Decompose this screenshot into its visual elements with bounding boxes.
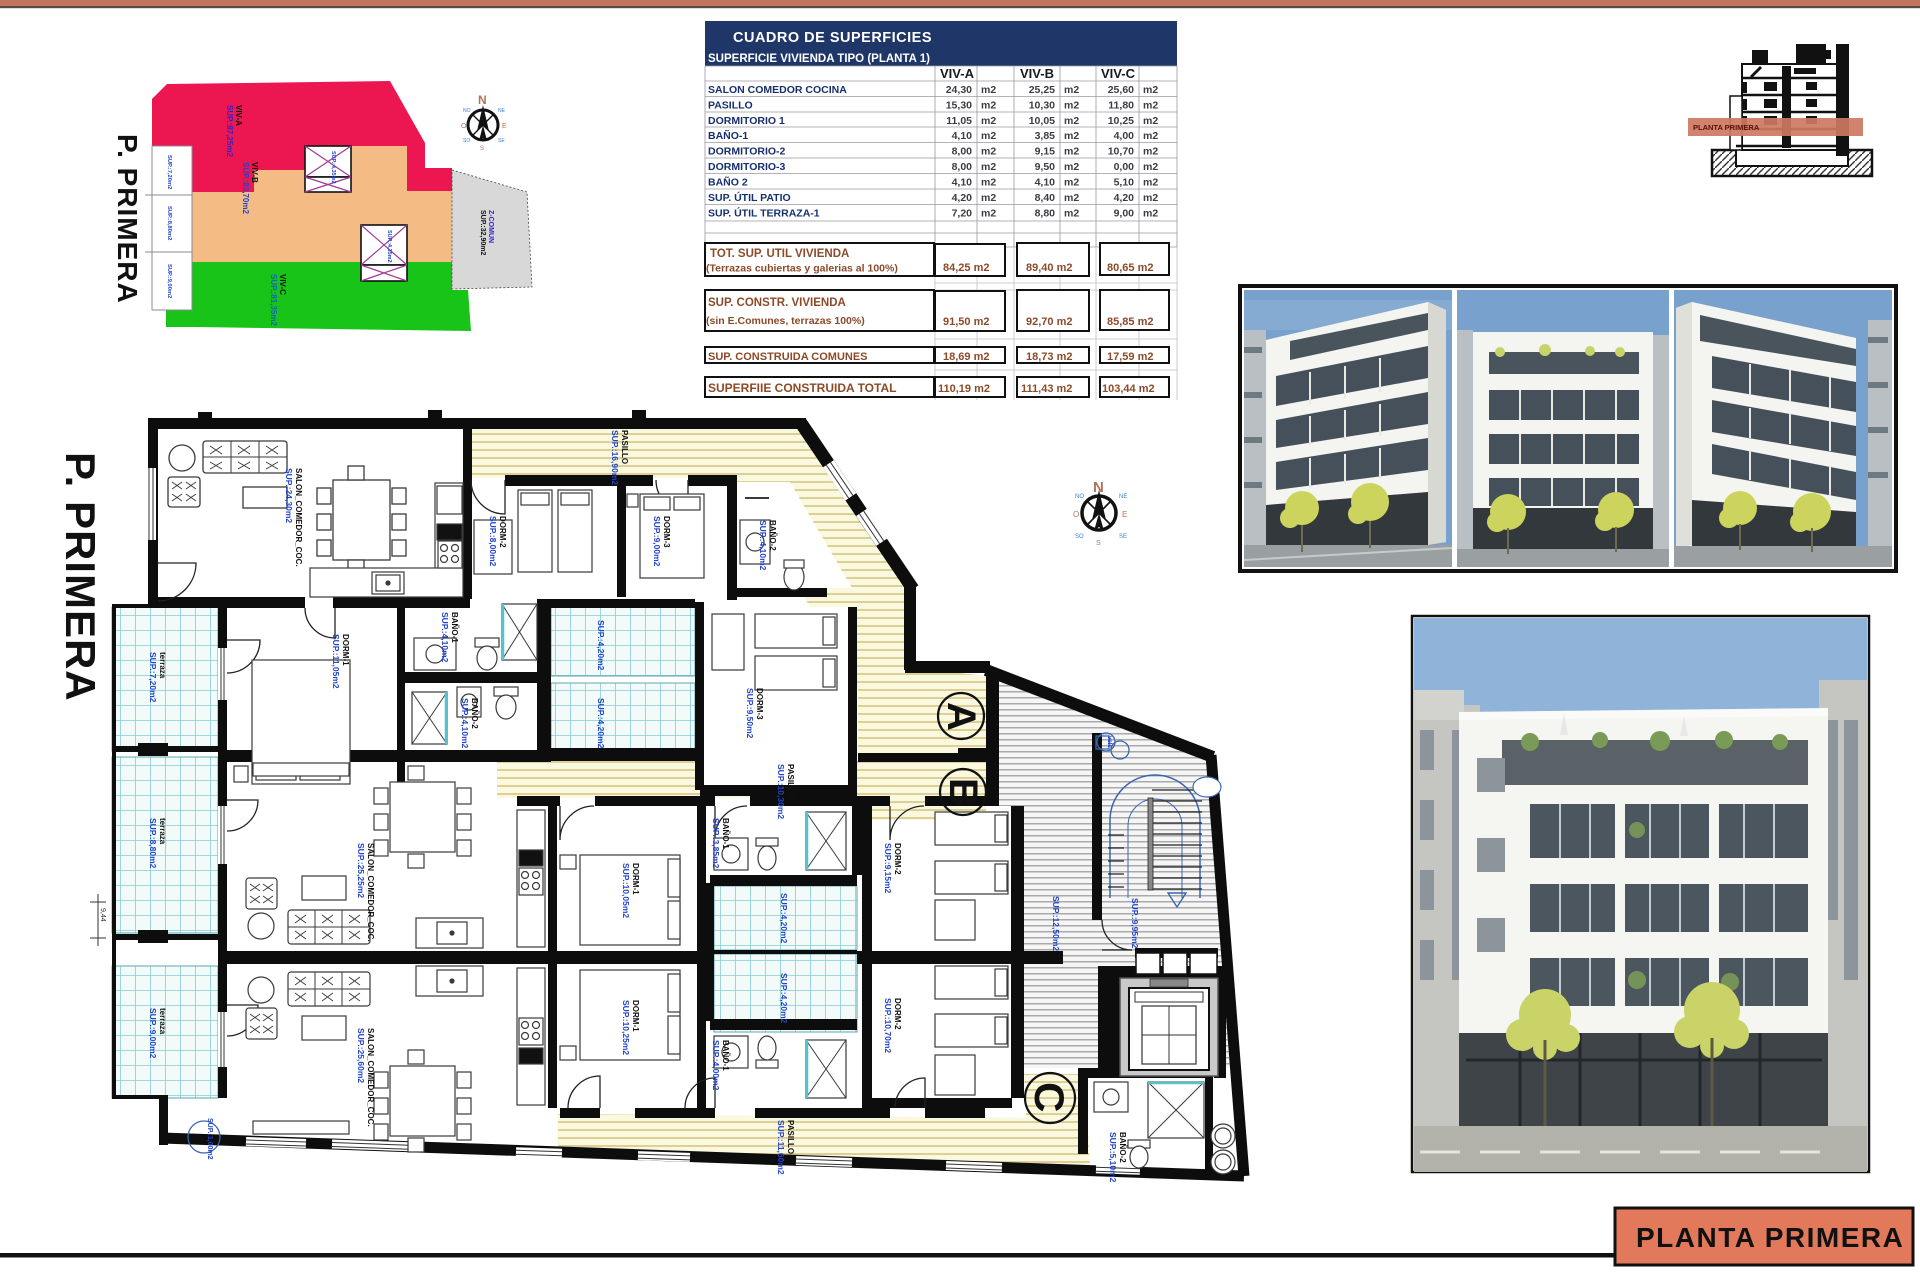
svg-text:TOT. SUP. UTIL VIVIENDA: TOT. SUP. UTIL VIVIENDA <box>710 248 849 260</box>
svg-text:4,10: 4,10 <box>1035 177 1056 189</box>
svg-text:DORMITORIO 1: DORMITORIO 1 <box>708 115 785 127</box>
svg-text:m2: m2 <box>1064 146 1079 158</box>
svg-text:DORM-2: DORM-2 <box>893 843 902 875</box>
svg-text:3,85: 3,85 <box>1035 130 1056 142</box>
svg-text:17,59 m2: 17,59 m2 <box>1107 351 1153 363</box>
svg-text:m2: m2 <box>1064 192 1079 204</box>
svg-text:S: S <box>480 146 484 152</box>
svg-text:4,00: 4,00 <box>1114 130 1135 142</box>
svg-text:PLANTA PRIMERA: PLANTA PRIMERA <box>1693 123 1760 132</box>
svg-text:SUP.:1,00m2: SUP.:1,00m2 <box>206 1118 213 1160</box>
svg-text:VIV-C: VIV-C <box>278 274 287 295</box>
svg-text:111,43 m2: 111,43 m2 <box>1021 383 1072 395</box>
svg-text:10,70: 10,70 <box>1108 146 1134 158</box>
svg-text:110,19 m2: 110,19 m2 <box>938 383 990 395</box>
svg-text:SUP.:24,30m2: SUP.:24,30m2 <box>284 468 294 523</box>
svg-text:SUP.:16,90m2: SUP.:16,90m2 <box>610 430 620 485</box>
svg-text:4,10: 4,10 <box>952 130 973 142</box>
svg-text:SALON_COMEDOR_COC.: SALON_COMEDOR_COC. <box>294 468 303 567</box>
svg-text:SUP.:10,30m2: SUP.:10,30m2 <box>776 764 786 819</box>
svg-text:E: E <box>1122 510 1127 519</box>
svg-text:m2: m2 <box>1143 208 1158 220</box>
svg-text:SUP. ÚTIL TERRAZA-1: SUP. ÚTIL TERRAZA-1 <box>708 207 820 220</box>
svg-text:SUP.:4,10m2: SUP.:4,10m2 <box>440 612 450 663</box>
svg-text:O: O <box>461 123 467 130</box>
svg-text:SUP.:32,90m2: SUP.:32,90m2 <box>479 210 486 256</box>
svg-text:4,20: 4,20 <box>952 192 973 204</box>
svg-text:Z-COMUN: Z-COMUN <box>487 210 494 243</box>
svg-text:DORM-2: DORM-2 <box>498 516 507 548</box>
svg-text:N: N <box>478 93 487 107</box>
svg-text:terraza: terraza <box>158 652 167 679</box>
svg-text:VIV-C: VIV-C <box>1101 66 1136 81</box>
svg-text:25,60: 25,60 <box>1108 84 1134 96</box>
svg-text:10,25: 10,25 <box>1108 115 1134 127</box>
svg-text:DORMITORIO-3: DORMITORIO-3 <box>708 161 786 173</box>
svg-text:SE: SE <box>498 138 505 144</box>
svg-text:BAÑO-1: BAÑO-1 <box>708 129 748 142</box>
svg-text:(sin E.Comunes, terrazas 100%): (sin E.Comunes, terrazas 100%) <box>706 315 865 327</box>
svg-text:SALON_COMEDOR_COC.: SALON_COMEDOR_COC. <box>366 1028 375 1127</box>
svg-text:SUP.:9,15m2: SUP.:9,15m2 <box>883 843 893 894</box>
svg-text:P. PRIMERA: P. PRIMERA <box>57 452 104 702</box>
svg-text:4,10: 4,10 <box>952 177 973 189</box>
svg-text:8,00: 8,00 <box>952 161 973 173</box>
svg-text:CUADRO DE SUPERFICIES: CUADRO DE SUPERFICIES <box>733 30 932 46</box>
svg-text:BAÑO 2: BAÑO 2 <box>708 176 748 189</box>
svg-text:m2: m2 <box>1143 130 1158 142</box>
svg-text:m2: m2 <box>1064 208 1079 220</box>
svg-text:DORM-1: DORM-1 <box>341 634 350 666</box>
svg-text:m2: m2 <box>981 100 996 112</box>
svg-text:SUP.:81,35m2: SUP.:81,35m2 <box>269 274 278 326</box>
svg-text:BAÑO-1: BAÑO-1 <box>721 1040 730 1071</box>
svg-text:DORM-3: DORM-3 <box>662 516 671 548</box>
svg-text:m2: m2 <box>1143 146 1158 158</box>
svg-text:SO: SO <box>1075 534 1084 540</box>
svg-text:10,05: 10,05 <box>1029 115 1055 127</box>
svg-text:SUP.:10,25m2: SUP.:10,25m2 <box>621 1000 631 1055</box>
svg-text:SUP.:87,25m2: SUP.:87,25m2 <box>225 105 234 157</box>
svg-text:15,30: 15,30 <box>946 100 972 112</box>
svg-text:SUP.:4,00m2: SUP.:4,00m2 <box>711 1040 721 1091</box>
svg-text:C: C <box>1026 1082 1073 1112</box>
svg-text:SUP.:10,05m2: SUP.:10,05m2 <box>621 863 631 918</box>
svg-text:m2: m2 <box>981 130 996 142</box>
svg-text:SALON_COMEDOR_COC.: SALON_COMEDOR_COC. <box>366 843 375 942</box>
svg-text:m2: m2 <box>1143 84 1158 96</box>
svg-text:7,20: 7,20 <box>952 208 973 220</box>
svg-text:9,44: 9,44 <box>99 908 106 922</box>
svg-text:DORM-1: DORM-1 <box>631 863 640 895</box>
svg-text:SUP.:9,95m2: SUP.:9,95m2 <box>1130 898 1140 949</box>
svg-text:DORMITORIO-2: DORMITORIO-2 <box>708 146 786 158</box>
svg-text:18,73 m2: 18,73 m2 <box>1026 351 1072 363</box>
svg-text:SUP.:4,20m2: SUP.:4,20m2 <box>779 893 789 944</box>
svg-text:SUP. ÚTIL PATIO: SUP. ÚTIL PATIO <box>708 191 791 204</box>
svg-text:m2: m2 <box>981 115 996 127</box>
svg-text:PLANTA PRIMERA: PLANTA PRIMERA <box>1636 1222 1904 1253</box>
svg-text:11,05: 11,05 <box>946 115 972 127</box>
svg-text:m2: m2 <box>1064 177 1079 189</box>
svg-text:103,44 m2: 103,44 m2 <box>1102 383 1155 395</box>
svg-text:92,70 m2: 92,70 m2 <box>1026 316 1072 328</box>
svg-text:5,10: 5,10 <box>1114 177 1135 189</box>
svg-text:NE: NE <box>1119 494 1127 500</box>
svg-text:S: S <box>1096 540 1101 547</box>
svg-text:m2: m2 <box>981 177 996 189</box>
svg-text:8,40: 8,40 <box>1035 192 1056 204</box>
svg-text:m2: m2 <box>1064 84 1079 96</box>
svg-text:PASILLO: PASILLO <box>708 100 753 112</box>
svg-text:SUP.:12,50m2: SUP.:12,50m2 <box>1051 896 1061 951</box>
svg-text:89,40 m2: 89,40 m2 <box>1026 262 1072 274</box>
svg-text:E: E <box>502 123 507 130</box>
svg-text:SUP.:11,05m2: SUP.:11,05m2 <box>331 634 341 689</box>
svg-text:SUP.:9,00m2: SUP.:9,00m2 <box>148 1008 158 1059</box>
svg-text:m2: m2 <box>1143 192 1158 204</box>
svg-text:SUP.:4,20m2: SUP.:4,20m2 <box>596 620 606 671</box>
svg-text:10,30: 10,30 <box>1029 100 1055 112</box>
svg-text:24,30: 24,30 <box>946 84 972 96</box>
svg-text:91,50 m2: 91,50 m2 <box>943 316 989 328</box>
svg-text:m2: m2 <box>981 208 996 220</box>
svg-text:terraza: terraza <box>158 818 167 845</box>
svg-text:SUP.:4,35m2: SUP.:4,35m2 <box>386 230 392 263</box>
svg-text:BAÑO-1: BAÑO-1 <box>450 612 459 643</box>
svg-text:9,15: 9,15 <box>1035 146 1056 158</box>
svg-text:SUP.:4,20m2: SUP.:4,20m2 <box>596 698 606 749</box>
svg-text:SUP.:7,20m2: SUP.:7,20m2 <box>166 155 172 189</box>
svg-text:PASILLO: PASILLO <box>620 430 629 464</box>
svg-text:m2: m2 <box>1064 115 1079 127</box>
svg-text:m2: m2 <box>1143 177 1158 189</box>
svg-text:NO: NO <box>463 108 471 114</box>
svg-text:SE: SE <box>1119 534 1127 540</box>
svg-text:SUP.:4,20m2: SUP.:4,20m2 <box>779 973 789 1024</box>
svg-text:m2: m2 <box>1064 161 1079 173</box>
svg-text:BAÑO-2: BAÑO-2 <box>1118 1132 1127 1163</box>
svg-text:VIV-B: VIV-B <box>1020 66 1054 81</box>
svg-text:SUP.:9,50m2: SUP.:9,50m2 <box>745 688 755 739</box>
svg-text:velc: velc <box>1106 736 1112 748</box>
svg-text:85,85 m2: 85,85 m2 <box>1107 316 1153 328</box>
svg-text:m2: m2 <box>981 84 996 96</box>
svg-text:SUP.:83,70m2: SUP.:83,70m2 <box>241 162 250 214</box>
svg-text:m2: m2 <box>981 146 996 158</box>
svg-text:P. PRIMERA: P. PRIMERA <box>112 134 143 304</box>
svg-text:11,80: 11,80 <box>1108 100 1134 112</box>
svg-text:NO: NO <box>1075 494 1084 500</box>
svg-text:SUP.:11,60m2: SUP.:11,60m2 <box>776 1120 786 1175</box>
svg-text:m2: m2 <box>1143 161 1158 173</box>
svg-text:SUP.:8,80m2: SUP.:8,80m2 <box>148 818 158 869</box>
svg-text:SUP.:10,70m2: SUP.:10,70m2 <box>883 998 893 1053</box>
svg-text:18,69 m2: 18,69 m2 <box>943 351 989 363</box>
svg-text:SUP.:25,25m2: SUP.:25,25m2 <box>356 843 366 898</box>
svg-text:9,50: 9,50 <box>1035 161 1056 173</box>
svg-text:DORM-1: DORM-1 <box>631 1000 640 1032</box>
svg-text:terraza: terraza <box>158 1008 167 1035</box>
svg-text:PASILLO: PASILLO <box>786 1120 795 1154</box>
svg-text:A: A <box>939 702 983 731</box>
svg-text:SUPERFIIE CONSTRUIDA TOTAL: SUPERFIIE CONSTRUIDA TOTAL <box>708 381 896 395</box>
svg-text:m2: m2 <box>981 192 996 204</box>
svg-text:SUP.:4,10m2: SUP.:4,10m2 <box>460 698 470 749</box>
svg-text:m2: m2 <box>1064 130 1079 142</box>
svg-text:8,00: 8,00 <box>952 146 973 158</box>
svg-text:SUP.:5,10m2: SUP.:5,10m2 <box>1108 1132 1118 1183</box>
svg-text:NE: NE <box>498 108 506 114</box>
svg-text:SO: SO <box>463 138 470 144</box>
svg-text:SUP.:4,35m2: SUP.:4,35m2 <box>330 151 336 184</box>
svg-text:8,80: 8,80 <box>1035 208 1056 220</box>
svg-text:DORM-2: DORM-2 <box>893 998 902 1030</box>
svg-text:9,00: 9,00 <box>1114 208 1135 220</box>
svg-text:N: N <box>1093 479 1104 496</box>
svg-text:SUP.:9,00m2: SUP.:9,00m2 <box>166 264 172 298</box>
svg-text:4,20: 4,20 <box>1114 192 1135 204</box>
svg-text:VIV-A: VIV-A <box>234 105 243 126</box>
svg-text:25,25: 25,25 <box>1029 84 1055 96</box>
svg-text:BAÑO-2: BAÑO-2 <box>768 520 777 551</box>
svg-text:B: B <box>941 778 985 807</box>
svg-text:SUP.:8,00m2: SUP.:8,00m2 <box>488 516 498 567</box>
svg-text:SALON COMEDOR COCINA: SALON COMEDOR COCINA <box>708 84 847 96</box>
svg-text:(Terrazas cubiertas y galerias: (Terrazas cubiertas y galerias al 100%) <box>706 263 898 275</box>
svg-text:SUP.:25,60m2: SUP.:25,60m2 <box>356 1028 366 1083</box>
svg-text:SUP.:3,85m2: SUP.:3,85m2 <box>711 818 721 869</box>
svg-text:80,65 m2: 80,65 m2 <box>1107 262 1153 274</box>
svg-text:O: O <box>1073 510 1079 519</box>
svg-text:m2: m2 <box>981 161 996 173</box>
svg-text:PASILLO: PASILLO <box>786 764 795 798</box>
svg-text:84,25 m2: 84,25 m2 <box>943 262 989 274</box>
svg-text:SUPERFICIE VIVIENDA TIPO (PLA: SUPERFICIE VIVIENDA TIPO (PLANTA 1) <box>708 53 930 65</box>
svg-text:0,00: 0,00 <box>1114 161 1135 173</box>
svg-text:SUP. CONSTR. VIVIENDA: SUP. CONSTR. VIVIENDA <box>708 297 846 309</box>
svg-text:SUP.:8,80m2: SUP.:8,80m2 <box>166 206 172 240</box>
svg-text:SUP.:7,20m2: SUP.:7,20m2 <box>148 652 158 703</box>
svg-text:SUP. CONSTRUIDA COMUNES: SUP. CONSTRUIDA COMUNES <box>708 351 868 363</box>
svg-text:m2: m2 <box>1064 100 1079 112</box>
svg-text:m2: m2 <box>1143 100 1158 112</box>
svg-text:BAÑO-1: BAÑO-1 <box>721 818 730 849</box>
svg-text:VIV-A: VIV-A <box>940 66 975 81</box>
svg-text:SUP.:9,00m2: SUP.:9,00m2 <box>652 516 662 567</box>
svg-text:m2: m2 <box>1143 115 1158 127</box>
svg-text:BAÑO-2: BAÑO-2 <box>470 698 479 729</box>
svg-text:VIV-B: VIV-B <box>250 162 259 183</box>
svg-text:DORM-3: DORM-3 <box>755 688 764 720</box>
svg-text:SUP.:4,10m2: SUP.:4,10m2 <box>758 520 768 571</box>
